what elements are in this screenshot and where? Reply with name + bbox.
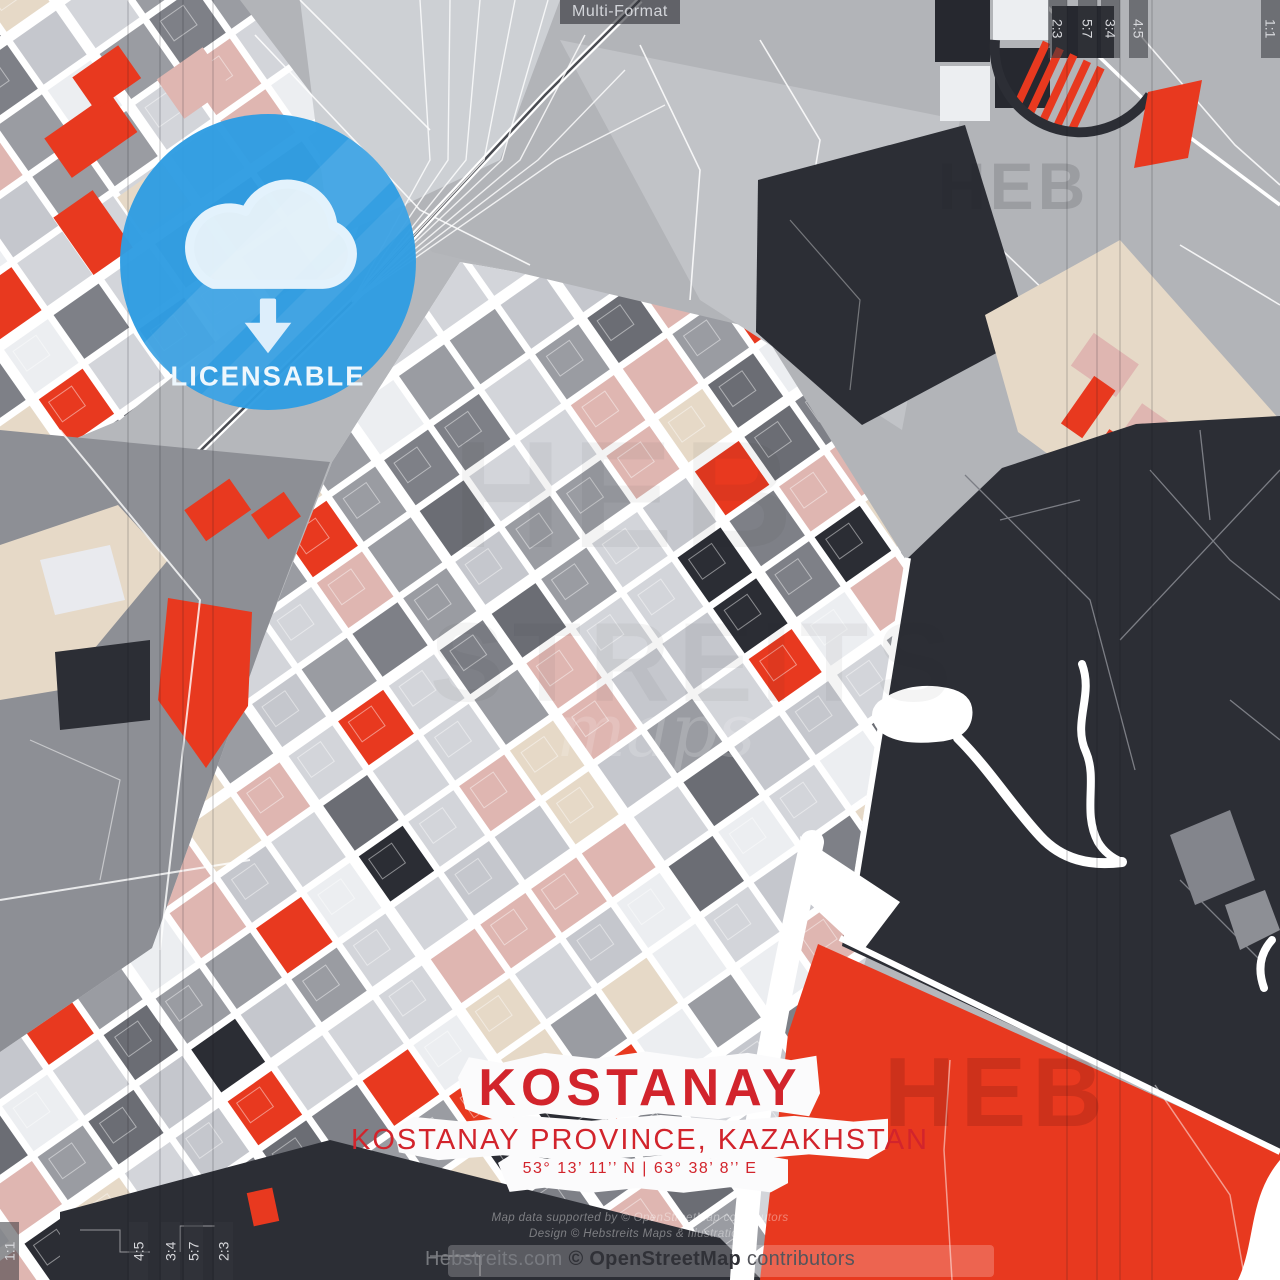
- badge-label: LICENSABLE: [170, 361, 365, 392]
- aspect-ratio-chip-3-4-top: 3:4: [1101, 0, 1120, 58]
- design-credit: Design © Hebstreits Maps & Illustrations: [340, 1228, 940, 1240]
- aspect-ratio-chip-2-3-top: 2:3: [1048, 0, 1067, 58]
- brand-label: Hebstreits.com: [425, 1248, 563, 1270]
- aspect-ratio-chip-1-1-top: 1:1: [1261, 0, 1280, 58]
- aspect-ratio-chip-3-4-bottom: 3:4: [161, 1222, 180, 1280]
- format-badge: Multi-Format: [560, 0, 680, 24]
- aspect-ratio-chip-5-7-bottom: 5:7: [184, 1222, 203, 1280]
- aspect-ratio-chip-5-7-top: 5:7: [1078, 0, 1097, 58]
- osm-contributors: contributors: [747, 1248, 855, 1270]
- osm-copyright: © OpenStreetMap: [568, 1248, 741, 1270]
- region-subtitle: KOSTANAY PROVINCE, KAZAKHSTAN: [0, 1124, 1280, 1157]
- page-title: KOSTANAY: [0, 1058, 1280, 1118]
- map-data-credit: Map data supported by © OpenStreetMap co…: [340, 1212, 940, 1224]
- aspect-ratio-chip-4-5-bottom: 4:5: [129, 1222, 148, 1280]
- attribution-row: Hebstreits.com © OpenStreetMap contribut…: [340, 1248, 940, 1271]
- poster-image: HEB STREITS maps HEB HEB Multi-Format 2:…: [0, 0, 1280, 1280]
- aspect-ratio-chip-4-5-top: 4:5: [1129, 0, 1148, 58]
- aspect-ratio-chip-2-3-bottom: 2:3: [214, 1222, 233, 1280]
- aspect-ratio-chip-1-1-bottom: 1:1: [0, 1222, 19, 1280]
- coordinates-label: 53° 13’ 11’’ N | 63° 38’ 8’’ E: [0, 1160, 1280, 1178]
- licensable-badge: LICENSABLE: [116, 110, 420, 414]
